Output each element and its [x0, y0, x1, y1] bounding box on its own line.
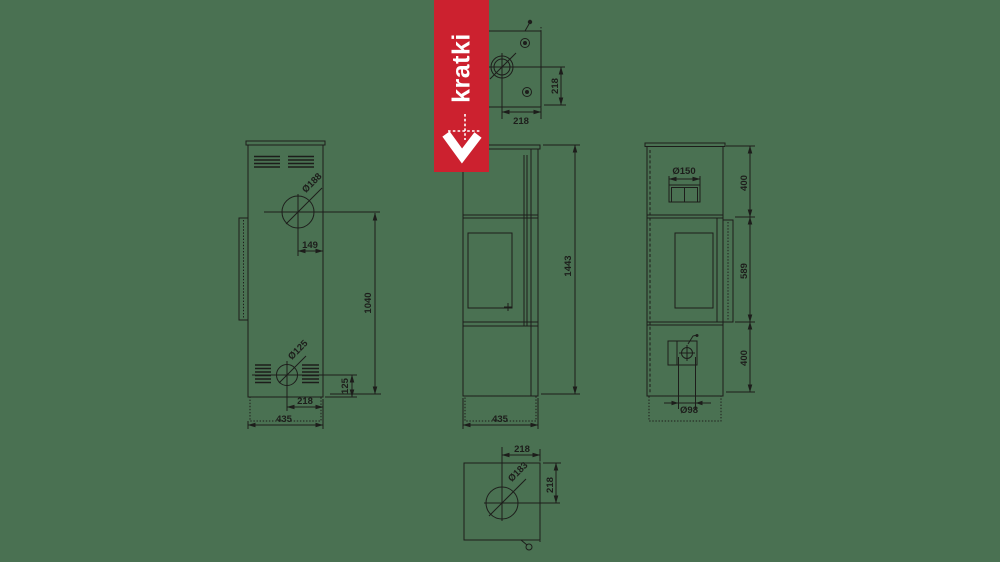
brand-wordmark: kratki: [447, 33, 476, 103]
dim-flue-offset: 149: [302, 240, 318, 251]
dim-bottom-offset-x: 218: [514, 444, 530, 455]
front-view: 1443 435: [459, 145, 580, 429]
door-handle-mark: [504, 303, 512, 311]
side-panel: [675, 233, 713, 308]
dim-bottom-section: 400: [739, 350, 750, 366]
dim-bottom-offset-y: 218: [545, 477, 556, 493]
dim-side-inlet-diameter: Ø98: [680, 405, 698, 416]
dim-rear-width: 435: [276, 414, 293, 425]
top-vents: [254, 157, 314, 168]
dim-flue-to-floor: 1040: [363, 292, 374, 313]
kratki-v-logo-icon: [439, 113, 485, 167]
dim-inlet-side-offset: 218: [297, 396, 313, 407]
door-glass: [468, 233, 512, 308]
dim-inlet-bottom-offset: 125: [340, 377, 351, 394]
dim-top-width: 218: [513, 116, 529, 127]
kratki-banner: kratki: [434, 0, 489, 172]
stove-technical-drawing: 218 218 Ø188 149 1040 Ø125 125 218 435: [0, 0, 1000, 562]
dim-middle-section: 589: [739, 263, 750, 279]
rear-view: Ø188 149 1040 Ø125 125 218 435: [239, 141, 381, 429]
bottom-view: Ø183 218 218: [464, 444, 561, 550]
dim-top-depth: 218: [550, 78, 561, 94]
dim-top-section: 400: [739, 175, 750, 191]
dim-inlet-diameter: Ø125: [286, 338, 311, 363]
dim-front-width: 435: [492, 414, 509, 425]
leader-dot: [528, 20, 532, 24]
dim-total-height: 1443: [563, 255, 574, 276]
dim-rear-flue-diameter: Ø188: [300, 171, 324, 195]
dim-bottom-hole-diameter: Ø183: [506, 460, 530, 484]
dim-side-flue-diameter: Ø150: [672, 166, 695, 177]
drawing-linework: 218 218 Ø188 149 1040 Ø125 125 218 435: [0, 0, 1000, 562]
side-view: Ø150 Ø98 400 589 400: [645, 143, 755, 421]
